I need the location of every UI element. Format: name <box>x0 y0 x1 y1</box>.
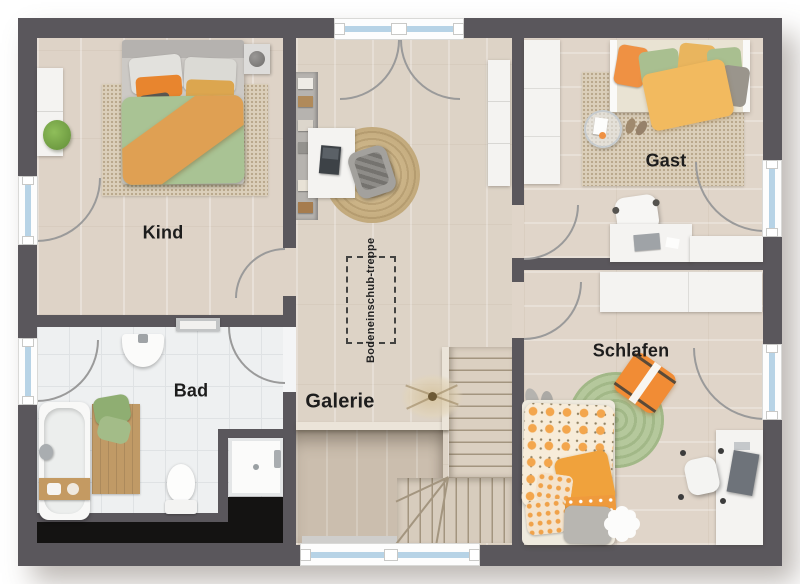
laptop <box>319 145 341 175</box>
shower-partition-v <box>218 429 228 513</box>
attic-hatch-outline: Bodeneinschub- treppe <box>346 256 396 344</box>
hinge <box>469 549 480 561</box>
toilet-tank <box>165 500 197 514</box>
kind-nightstand <box>244 44 270 74</box>
toilet <box>165 464 197 514</box>
attic-hatch-label-line1: Bodeneinschub- <box>364 273 378 363</box>
gast-side-table <box>584 110 622 148</box>
pillow-dots <box>524 498 567 536</box>
towel-rail <box>176 318 220 331</box>
shelf-line <box>488 101 510 102</box>
hinge <box>766 228 778 237</box>
floorplan-canvas: Kind Bad <box>0 0 800 584</box>
window-glass <box>769 350 775 414</box>
shelf-line <box>524 136 560 137</box>
bath-caddy <box>39 478 90 500</box>
dried-flowers <box>390 366 474 428</box>
chair-wheel <box>720 498 726 504</box>
lamp <box>249 51 265 67</box>
schlafen-door-threshold <box>512 282 524 338</box>
paper <box>665 237 680 249</box>
potted-plant <box>43 120 71 150</box>
room-label-kind: Kind <box>143 223 184 244</box>
kind-bed <box>122 40 244 184</box>
roof-void-shower <box>228 497 283 543</box>
table-item-orange <box>599 132 606 139</box>
shower-partition-h <box>218 429 294 438</box>
hinge <box>334 23 345 35</box>
gast-low-cabinet <box>690 236 763 262</box>
laptop-gray <box>633 233 660 251</box>
towel <box>180 321 216 329</box>
schlafen-wardrobe <box>600 272 762 312</box>
window-glass <box>25 182 31 239</box>
shower-faucet <box>274 450 281 468</box>
gast-door-threshold <box>512 205 524 258</box>
shelf-line <box>488 143 510 144</box>
galerie-lower-window <box>300 543 480 566</box>
hinge <box>766 344 778 353</box>
book-stack <box>298 202 313 213</box>
galerie-side-cabinet <box>488 60 510 186</box>
room-label-galerie: Galerie <box>305 391 374 414</box>
soap-bottle <box>47 483 61 495</box>
shower-drain <box>253 464 259 470</box>
faucet <box>138 334 148 343</box>
gast-window <box>762 160 782 237</box>
attic-hatch-label-line2: treppe <box>364 237 378 272</box>
hinge <box>384 549 398 561</box>
room-label-gast: Gast <box>646 151 687 172</box>
hinge <box>453 23 464 35</box>
kind-window <box>18 176 38 245</box>
balcony-double-door <box>334 18 464 40</box>
schlafen-window <box>762 344 782 420</box>
hinge <box>391 23 407 35</box>
hinge <box>22 236 34 245</box>
flower-center <box>428 392 437 401</box>
room-label-schlafen: Schlafen <box>593 341 670 362</box>
hinge <box>22 338 34 347</box>
shelf-line <box>524 88 560 89</box>
book-stack <box>298 78 313 89</box>
chair-wheel <box>718 448 724 454</box>
hinge <box>22 396 34 405</box>
window-glass <box>25 344 31 399</box>
chair-wheel <box>680 450 686 456</box>
toilet-bowl <box>167 464 195 502</box>
cushion-ribbon <box>629 362 662 404</box>
laptop-screen <box>322 147 339 159</box>
soap-bottle <box>67 483 79 495</box>
cloud-side-table <box>614 516 630 532</box>
shelf-line <box>688 272 689 312</box>
room-label-bad: Bad <box>174 381 209 402</box>
monitor <box>727 450 760 496</box>
gast-desk <box>610 224 692 262</box>
office-chair <box>680 446 724 506</box>
shower-tray <box>229 438 283 496</box>
window-glass <box>769 166 775 231</box>
desk-items <box>734 442 750 450</box>
schlafen-bed <box>522 400 615 545</box>
gast-wardrobe <box>524 40 560 184</box>
bad-window <box>18 338 38 405</box>
hinge <box>766 411 778 420</box>
gast-bed <box>610 40 750 112</box>
shelf-line <box>37 111 63 112</box>
hinge <box>766 160 778 169</box>
chair-seat <box>683 455 722 497</box>
chair-wheel <box>678 494 684 500</box>
bathtub <box>39 402 90 520</box>
hinge <box>300 549 311 561</box>
pillow-gray <box>563 505 612 545</box>
chair-cushion <box>353 151 390 192</box>
headboard <box>122 40 244 58</box>
book-stack <box>298 96 313 107</box>
throw-orange <box>121 95 245 185</box>
duvet-green <box>121 95 245 185</box>
armrest <box>612 206 620 214</box>
hinge <box>22 176 34 185</box>
staircase-winder-flight <box>397 478 512 543</box>
tub-faucet <box>39 444 53 460</box>
